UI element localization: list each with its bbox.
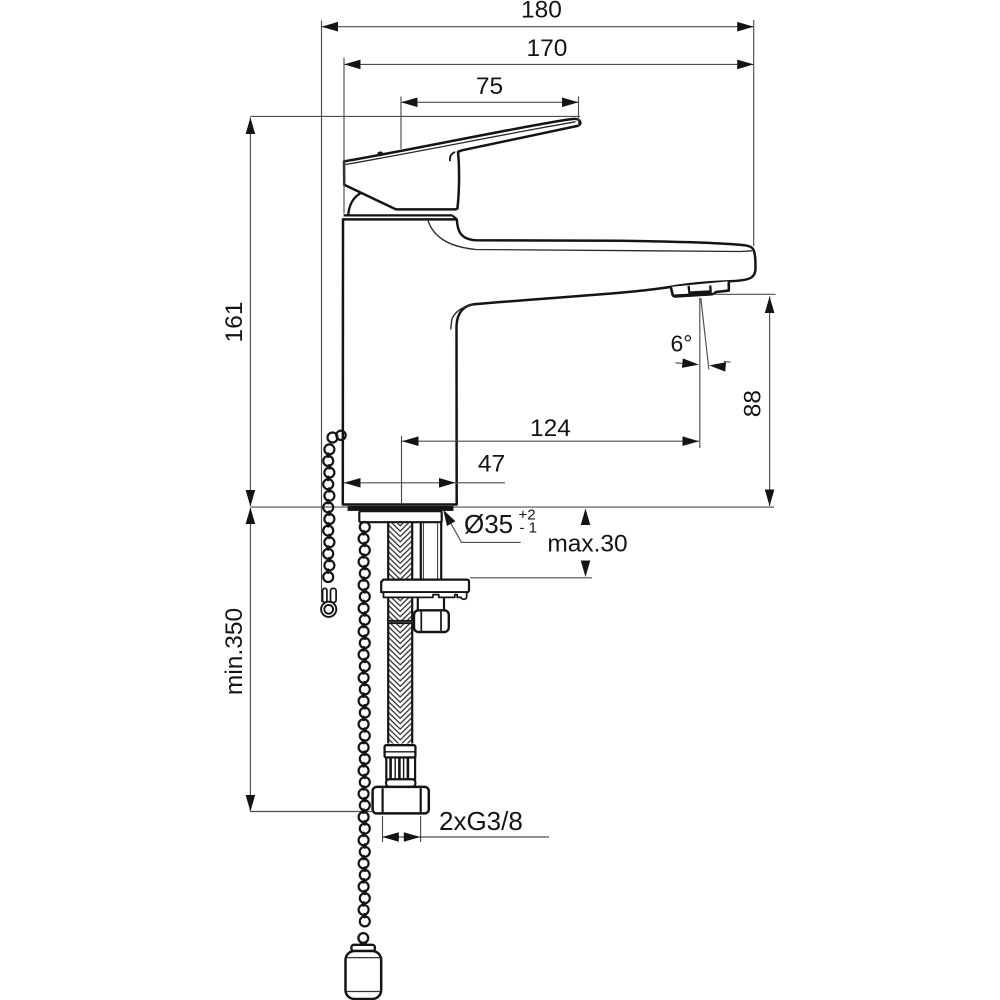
svg-text:- 1: - 1 [520, 520, 538, 537]
svg-text:max.30: max.30 [547, 531, 627, 558]
svg-text:170: 170 [527, 35, 568, 62]
svg-text:124: 124 [530, 415, 571, 442]
svg-text:47: 47 [478, 451, 505, 478]
svg-text:180: 180 [521, 0, 562, 24]
svg-text:Ø35: Ø35 [464, 509, 513, 539]
svg-text:88: 88 [740, 390, 767, 417]
svg-text:6°: 6° [671, 331, 693, 357]
svg-text:min.350: min.350 [221, 608, 248, 695]
svg-text:2xG3/8: 2xG3/8 [439, 806, 523, 836]
svg-text:161: 161 [221, 302, 248, 343]
svg-text:75: 75 [476, 73, 503, 100]
